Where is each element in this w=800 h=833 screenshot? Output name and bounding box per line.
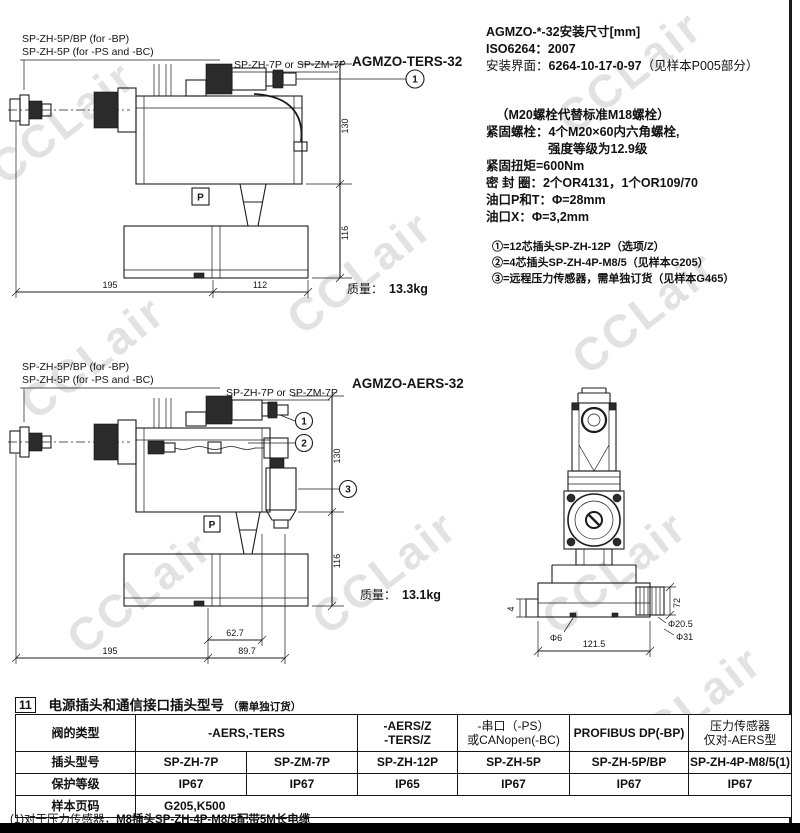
aers-32-drawing: SP-ZH-5P/BP (for -BP) SP-ZH-5P (for -PS …	[8, 358, 468, 670]
spec-iso: ISO6264：2007	[486, 41, 794, 58]
callout-3: 3	[340, 481, 357, 498]
ip-rating-cell: IP67	[458, 774, 570, 796]
section-title: 电源插头和通信接口插头型号	[48, 698, 224, 713]
ip-rating-cell: IP67	[689, 774, 792, 796]
spec-seal: 密 封 圈：2个OR4131，1个OR109/70	[486, 175, 794, 192]
top-cap	[578, 388, 610, 403]
height-dimensions: 130 116	[298, 60, 352, 282]
callout-1: 1	[296, 413, 313, 430]
spec-port-x: 油口X：Φ=3,2mm	[486, 209, 794, 226]
plug-5pbp-label: SP-ZH-5P/BP (for -BP)	[22, 361, 129, 373]
header-valve-type: 阀的类型	[16, 715, 136, 752]
drawing-title: AGMZO-TERS-32	[352, 54, 462, 69]
spec-note-2: ②=4芯插头SP-ZH-4P-M8/5（见样本G205）	[486, 255, 794, 271]
plug-model-cell: SP-ZH-12P	[358, 752, 458, 774]
callout-leader	[280, 415, 295, 421]
base	[526, 565, 650, 617]
mass-label: 质量：	[360, 588, 396, 602]
funnel	[236, 512, 260, 554]
dim-130: 130	[332, 448, 342, 463]
header-pressure-sensor: 压力传感器 仅对-AERS型	[689, 715, 792, 752]
header-sensor-line2: 仅对-AERS型	[690, 733, 790, 747]
spec-bolt-note: （M20螺栓代替标准M18螺栓）	[486, 107, 794, 124]
plug-section-header: 11 电源插头和通信接口插头型号 （需单独订货）	[15, 694, 301, 714]
front-dimensions: 4 Φ6 72 Φ20.5 Φ31 121.5	[506, 583, 693, 657]
header-aers-z: -AERS/Z -TERS/Z	[358, 715, 458, 752]
plug-5p-label: SP-ZH-5P (for -PS and -BC)	[22, 374, 154, 386]
ip-rating-cell: IP67	[570, 774, 689, 796]
width-dimensions: 62.7 195 89.7	[12, 454, 289, 664]
neck	[576, 549, 612, 565]
dim-phi20-5: Φ20.5	[668, 619, 693, 629]
collar	[568, 471, 620, 491]
spec-interface: 安装界面：6264-10-17-0-97（见样本P005部分）	[486, 58, 794, 75]
ip-rating-cell: IP65	[358, 774, 458, 796]
plug-type-table: 阀的类型 -AERS,-TERS -AERS/Z -TERS/Z -串口（-PS…	[15, 714, 792, 818]
plug-model-cell: SP-ZM-7P	[247, 752, 358, 774]
valve-body	[136, 398, 270, 512]
spec-port-pt: 油口P和T：Φ=28mm	[486, 192, 794, 209]
mounting-flange	[564, 491, 624, 549]
pressure-sensor	[264, 438, 296, 528]
footnote-prefix: (1)对于压力传感器，	[10, 814, 116, 826]
spec-bolt-line2: 强度等级为12.9级	[486, 141, 794, 158]
funnel	[240, 184, 266, 226]
header-aers-z-line2: -TERS/Z	[359, 733, 456, 747]
base-block	[124, 554, 308, 606]
callout-1-number: 1	[301, 417, 307, 428]
header-serial-line1: -串口（-PS）	[459, 719, 568, 733]
dim-4: 4	[506, 606, 516, 611]
spec-note-3: ③=远程压力传感器，需单独订货（见样本G465）	[486, 271, 794, 287]
dim-phi31: Φ31	[676, 632, 693, 642]
callout-1-number: 1	[412, 75, 418, 86]
base-block	[124, 226, 308, 278]
label-leader	[20, 60, 220, 90]
plug-5pbp-label: SP-ZH-5P/BP (for -BP)	[22, 33, 129, 45]
section-number: 11	[15, 697, 36, 713]
dim-89-7: 89.7	[238, 646, 256, 656]
dim-62-7: 62.7	[226, 628, 244, 638]
callout-2-number: 2	[301, 439, 307, 450]
plug-7p-connector	[186, 396, 288, 426]
port-p-box: P	[204, 516, 220, 532]
port-p-letter: P	[209, 520, 216, 531]
plug-5p-label: SP-ZH-5P (for -PS and -BC)	[22, 46, 154, 58]
port-p-box: P	[192, 188, 209, 205]
height-dimensions: 130 116	[292, 392, 344, 610]
dim-130: 130	[340, 118, 350, 133]
spec-interface-label: 安装界面：	[486, 59, 549, 73]
header-aers-z-line1: -AERS/Z	[359, 719, 456, 733]
spec-torque: 紧固扭矩=600Nm	[486, 158, 794, 175]
install-specs: AGMZO-*-32安装尺寸[mm] ISO6264：2007 安装界面：626…	[486, 24, 794, 287]
header-serial-line2: 或CANopen(-BC)	[459, 733, 568, 747]
callout-1: 1	[406, 70, 424, 88]
callout-3-number: 3	[345, 485, 351, 496]
label-leader	[232, 72, 338, 84]
plug-model-cell: SP-ZH-7P	[136, 752, 247, 774]
header-aers-ters: -AERS,-TERS	[136, 715, 358, 752]
callout-2: 2	[296, 435, 313, 452]
spec-bolt-line1: 紧固螺栓：4个M20×60内六角螺栓,	[486, 124, 794, 141]
spec-note-1: ①=12芯插头SP-ZH-12P（选项/Z）	[486, 239, 794, 255]
mass-label: 质量：	[347, 282, 383, 296]
spec-title: AGMZO-*-32安装尺寸[mm]	[486, 24, 794, 41]
pilot-column	[572, 403, 616, 471]
table-footnote: (1)对于压力传感器，M8插头SP-ZH-4P-M8/5配带5M长电缆	[10, 811, 310, 827]
section-note: （需单独订货）	[228, 701, 302, 713]
footnote-detail: M8插头SP-ZH-4P-M8/5配带5M长电缆	[116, 814, 310, 826]
mass-value: 13.1kg	[402, 588, 441, 602]
dim-112: 112	[253, 280, 267, 290]
front-view-drawing: 4 Φ6 72 Φ20.5 Φ31 121.5	[490, 385, 720, 685]
dim-121-5: 121.5	[583, 639, 606, 649]
spec-interface-value: 6264-10-17-0-97	[549, 59, 642, 73]
cable-loop	[254, 94, 307, 151]
mass-value: 13.3kg	[389, 282, 428, 296]
ip-rating-cell: IP67	[136, 774, 247, 796]
dim-195: 195	[102, 280, 117, 290]
drawing-title: AGMZO-AERS-32	[352, 376, 464, 391]
plug-7p-label: SP-ZH-7P or SP-ZM-7P	[234, 59, 346, 71]
plug-4p-connector	[148, 441, 264, 454]
ters-32-drawing: SP-ZH-5P/BP (for -BP) SP-ZH-5P (for -PS …	[8, 30, 468, 322]
dim-116: 116	[332, 554, 342, 568]
dim-72: 72	[672, 598, 682, 608]
header-serial-canopen: -串口（-PS） 或CANopen(-BC)	[458, 715, 570, 752]
width-dimensions: 195 112	[12, 122, 312, 298]
port-p-letter: P	[197, 193, 204, 204]
label-leader	[20, 388, 220, 422]
spec-interface-note: （见样本P005部分）	[642, 59, 759, 73]
dim-195: 195	[102, 646, 117, 656]
ip-rating-cell: IP67	[247, 774, 358, 796]
dim-116: 116	[340, 226, 350, 240]
plug-7p-label: SP-ZH-7P or SP-ZM-7P	[226, 387, 338, 399]
header-sensor-line1: 压力传感器	[690, 719, 790, 733]
plug-model-cell: SP-ZH-5P/BP	[570, 752, 689, 774]
plug-model-cell: SP-ZH-4P-M8/5(1)	[689, 752, 792, 774]
row-label-protection: 保护等级	[16, 774, 136, 796]
dim-phi6: Φ6	[550, 633, 562, 643]
header-profibus: PROFIBUS DP(-BP)	[570, 715, 689, 752]
row-label-plug-model: 插头型号	[16, 752, 136, 774]
plug-model-cell: SP-ZH-5P	[458, 752, 570, 774]
